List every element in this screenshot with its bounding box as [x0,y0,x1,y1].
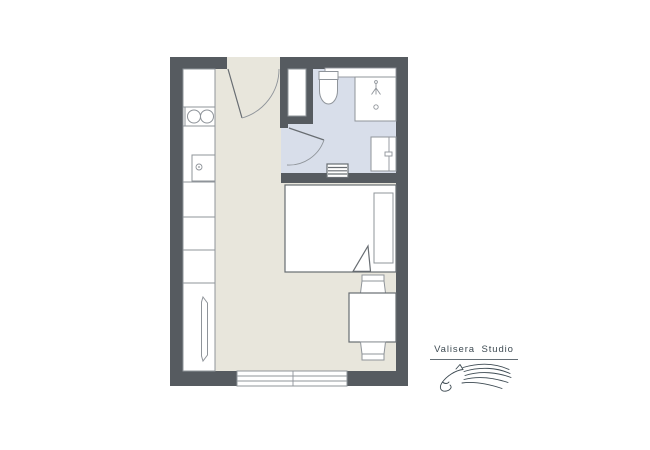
wall-bottom-right [347,371,408,386]
shower [355,77,396,121]
brand-name: Valisera Studio [430,344,518,355]
toilet-tank [319,72,338,80]
toilet [319,72,338,105]
horse-logo-icon [434,362,514,396]
wall-top-right [280,57,408,69]
washbasin [371,137,396,171]
closet [288,69,306,116]
double-bed [285,185,396,272]
toilet-bowl [320,80,338,105]
towel-radiator [327,164,348,178]
floor-plan-drawing [0,0,650,450]
entry-opening-floor [227,57,280,69]
kitchen-sink [192,155,215,181]
faucet-handle-icon [385,152,392,156]
chair-top [361,275,386,293]
chair-bottom [361,342,386,360]
wall-closet-right [306,69,313,124]
chair-backrest [362,275,384,281]
kitchen [183,69,215,371]
brand-divider [430,359,518,360]
floor-plan-image: Valisera Studio [0,0,650,450]
chair-backrest [362,354,384,360]
wall-under-closet [288,116,306,124]
tall-cabinet-door [202,297,208,361]
wall-right [396,57,408,386]
wall-bottom-left [170,371,237,386]
wall-entry-stub [280,57,288,128]
brand-block: Valisera Studio [430,344,518,396]
window [237,371,347,386]
bed-pillow [374,193,393,263]
window-frame [237,371,347,386]
chair-seat [361,281,386,293]
table [349,293,396,342]
wall-left [170,57,183,386]
chair-seat [361,342,386,354]
